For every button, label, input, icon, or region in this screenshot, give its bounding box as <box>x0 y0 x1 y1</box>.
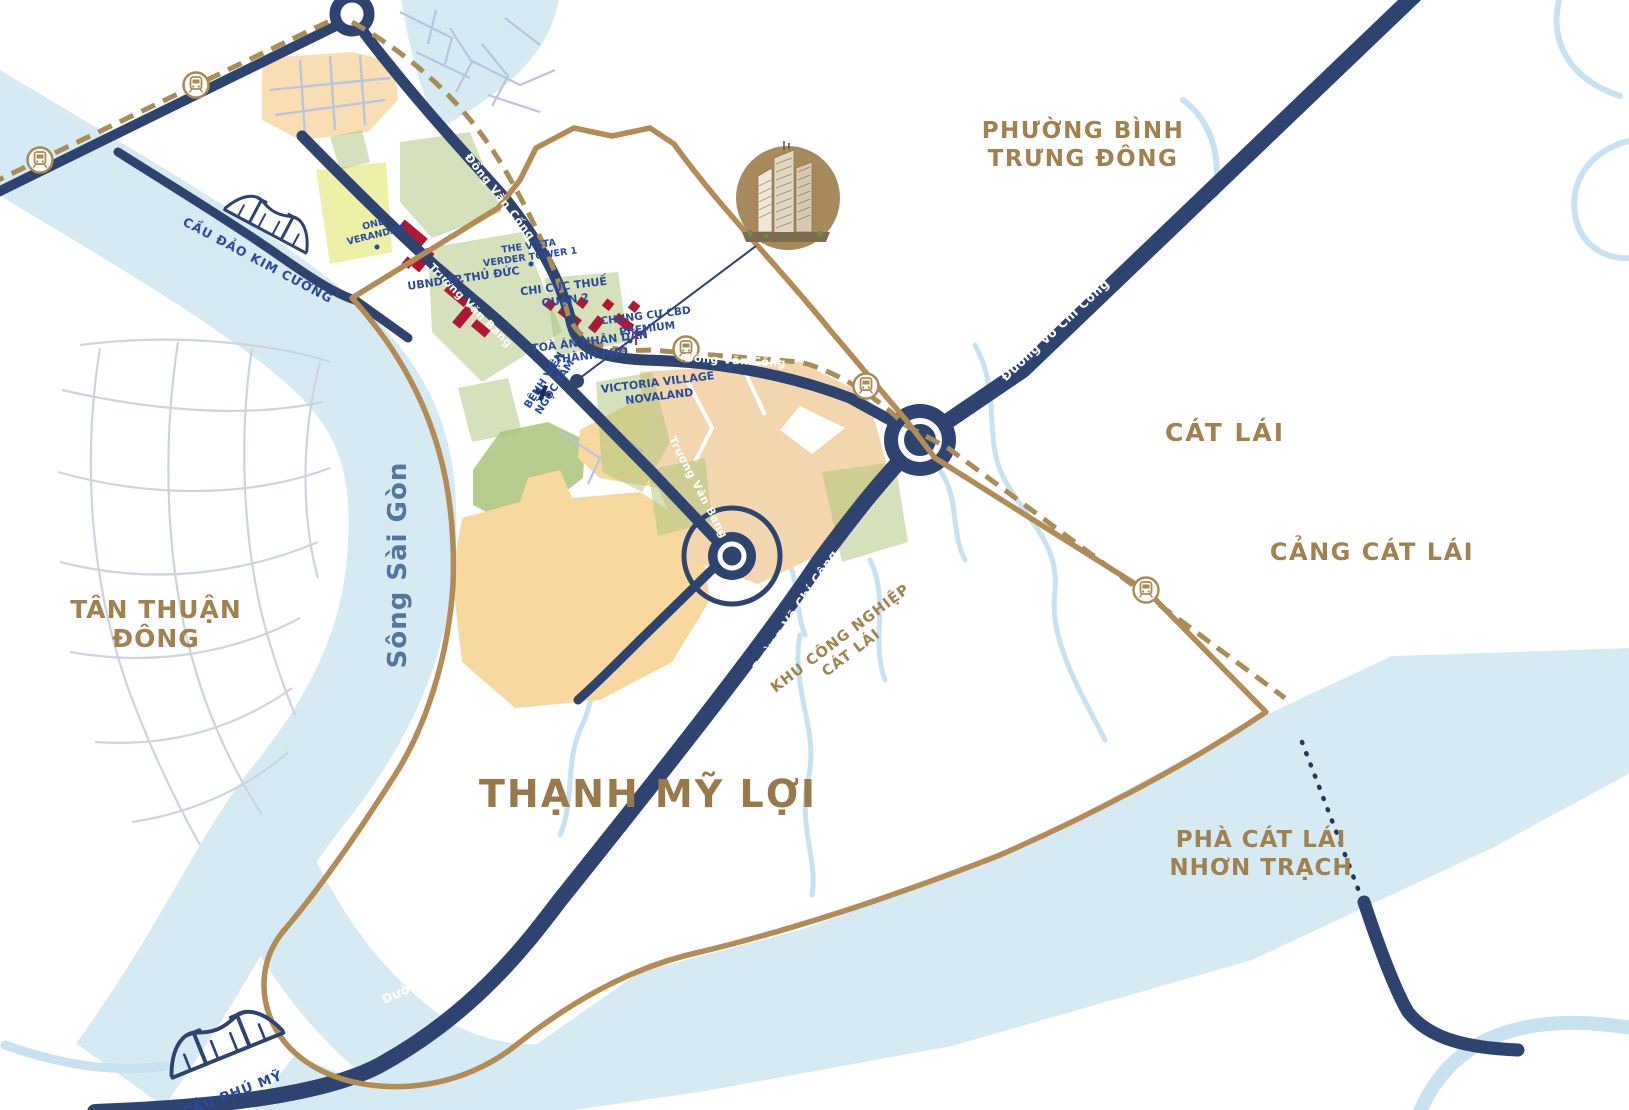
metro-station-icon <box>1134 578 1159 603</box>
metro-station-icon <box>184 73 209 98</box>
label-cat-lai: CÁT LÁI <box>1165 418 1285 447</box>
location-map: PHƯỜNG BÌNHTRƯNG ĐÔNGCÁT LÁICẢNG CÁT LÁI… <box>0 0 1629 1110</box>
label-song-sai-gon: Sông Sài Gòn <box>383 462 413 669</box>
poi-dot-icon <box>375 245 380 250</box>
beige-street-grid <box>262 52 398 140</box>
label-tan-thuan-dong: TÂN THUẬNĐÔNG <box>70 594 242 653</box>
metro-station-icon <box>854 374 879 399</box>
label-phuong-binh-trung-dong: PHƯỜNG BÌNHTRƯNG ĐÔNG <box>982 116 1185 172</box>
project-location-dot <box>570 374 584 388</box>
metro-station-icon <box>28 148 53 173</box>
road-nhon-trach <box>1364 902 1518 1050</box>
label-thanh-my-loi: THẠNH MỸ LỢI <box>479 772 817 816</box>
label-cang-cat-lai: CẢNG CÁT LÁI <box>1270 533 1474 566</box>
map-canvas: PHƯỜNG BÌNHTRƯNG ĐÔNGCÁT LÁICẢNG CÁT LÁI… <box>0 0 1629 1110</box>
label-road-vo-chi-cong-1: Đường Võ Chí Công <box>998 275 1113 383</box>
